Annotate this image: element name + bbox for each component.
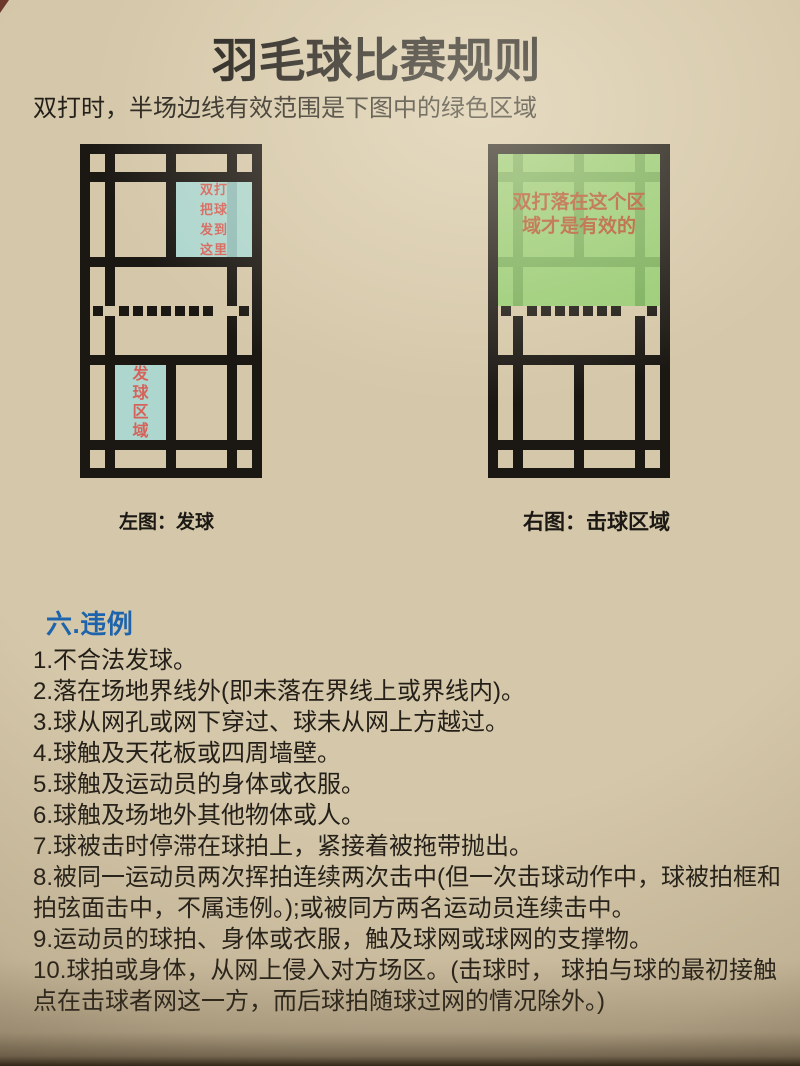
service-area-label-char: 发 — [132, 365, 148, 384]
net-dot — [189, 306, 199, 316]
net-dot — [161, 306, 171, 316]
net-dot — [583, 306, 593, 316]
net-dot — [133, 306, 143, 316]
net-dot — [203, 306, 213, 316]
net-dot — [569, 306, 579, 316]
net-dot — [555, 306, 565, 316]
service-area-zone: 发 球 区 域 — [115, 365, 166, 440]
rule-item: 4.球触及天花板或四周墙壁。 — [33, 738, 793, 769]
serve-target-zone: 双打 把球 发到 这里 — [176, 182, 252, 257]
rule-item: 10.球拍或身体，从网上侵入对方场区。(击球时， 球拍与球的最初接触点在击球者网… — [33, 955, 793, 1017]
court-line-vertical — [227, 316, 237, 468]
serve-target-label-line: 发到 — [200, 220, 228, 240]
net-dot — [597, 306, 607, 316]
right-court-caption: 右图：击球区域 — [523, 506, 670, 536]
court-center-line — [166, 355, 176, 468]
court-line-vertical — [635, 316, 645, 468]
serve-target-label-line: 这里 — [200, 240, 228, 260]
service-area-label: 发 球 区 域 — [132, 365, 148, 441]
left-court-diagram: 双打 把球 发到 这里 发 球 区 域 — [80, 144, 262, 478]
court-line-vertical — [105, 316, 115, 468]
rule-item: 1.不合法发球。 — [33, 645, 793, 676]
net-dotted-line — [498, 306, 660, 316]
net-dot — [527, 306, 537, 316]
net-dotted-line — [90, 306, 252, 316]
rule-item: 5.球触及运动员的身体或衣服。 — [33, 769, 793, 800]
court-line-vertical — [513, 316, 523, 468]
rule-item: 7.球被击时停滞在球拍上，紧接着被拖带抛出。 — [33, 831, 793, 862]
net-dot — [647, 306, 657, 316]
rule-item: 2.落在场地界线外(即未落在界线上或界线内)。 — [33, 676, 793, 707]
service-area-label-char: 域 — [132, 422, 148, 441]
rules-section-heading: 六.违例 — [46, 604, 133, 641]
page-subtitle: 双打时，半场边线有效范围是下图中的绿色区域 — [33, 88, 537, 123]
net-dot — [119, 306, 129, 316]
net-dot — [93, 306, 103, 316]
service-area-label-char: 球 — [132, 384, 148, 403]
right-court-diagram: 双打落在这个区 域才是有效的 — [488, 144, 670, 478]
net-dot — [147, 306, 157, 316]
valid-hit-zone-label-line: 域才是有效的 — [498, 215, 660, 239]
rules-list: 1.不合法发球。 2.落在场地界线外(即未落在界线上或界线内)。 3.球从网孔或… — [33, 645, 793, 1017]
net-dot — [175, 306, 185, 316]
poster-page: 羽毛球比赛规则 双打时，半场边线有效范围是下图中的绿色区域 双打 把球 发到 这… — [0, 0, 800, 1066]
valid-hit-zone-label: 双打落在这个区 域才是有效的 — [498, 191, 660, 239]
net-dot — [611, 306, 621, 316]
rule-item: 9.运动员的球拍、身体或衣服，触及球网或球网的支撑物。 — [33, 924, 793, 955]
paper-corner-stain — [0, 0, 9, 13]
court-center-line — [574, 355, 584, 468]
serve-target-label: 双打 把球 发到 这里 — [200, 180, 228, 260]
serve-target-label-line: 双打 — [200, 180, 228, 200]
page-title: 羽毛球比赛规则 — [0, 22, 752, 91]
service-area-label-char: 区 — [132, 403, 148, 422]
court-line-vertical — [105, 154, 115, 306]
net-dot — [541, 306, 551, 316]
rule-item: 6.球触及场地外其他物体或人。 — [33, 800, 793, 831]
left-court-caption: 左图：发球 — [119, 507, 214, 534]
rule-item: 3.球从网孔或网下穿过、球未从网上方越过。 — [33, 707, 793, 738]
court-center-line — [166, 154, 176, 267]
valid-hit-zone-label-line: 双打落在这个区 — [498, 191, 660, 215]
rule-item: 8.被同一运动员两次挥拍连续两次击中(但一次击球动作中，球被拍框和拍弦面击中，不… — [33, 862, 793, 924]
serve-target-label-line: 把球 — [200, 200, 228, 220]
net-dot — [501, 306, 511, 316]
net-dot — [239, 306, 249, 316]
